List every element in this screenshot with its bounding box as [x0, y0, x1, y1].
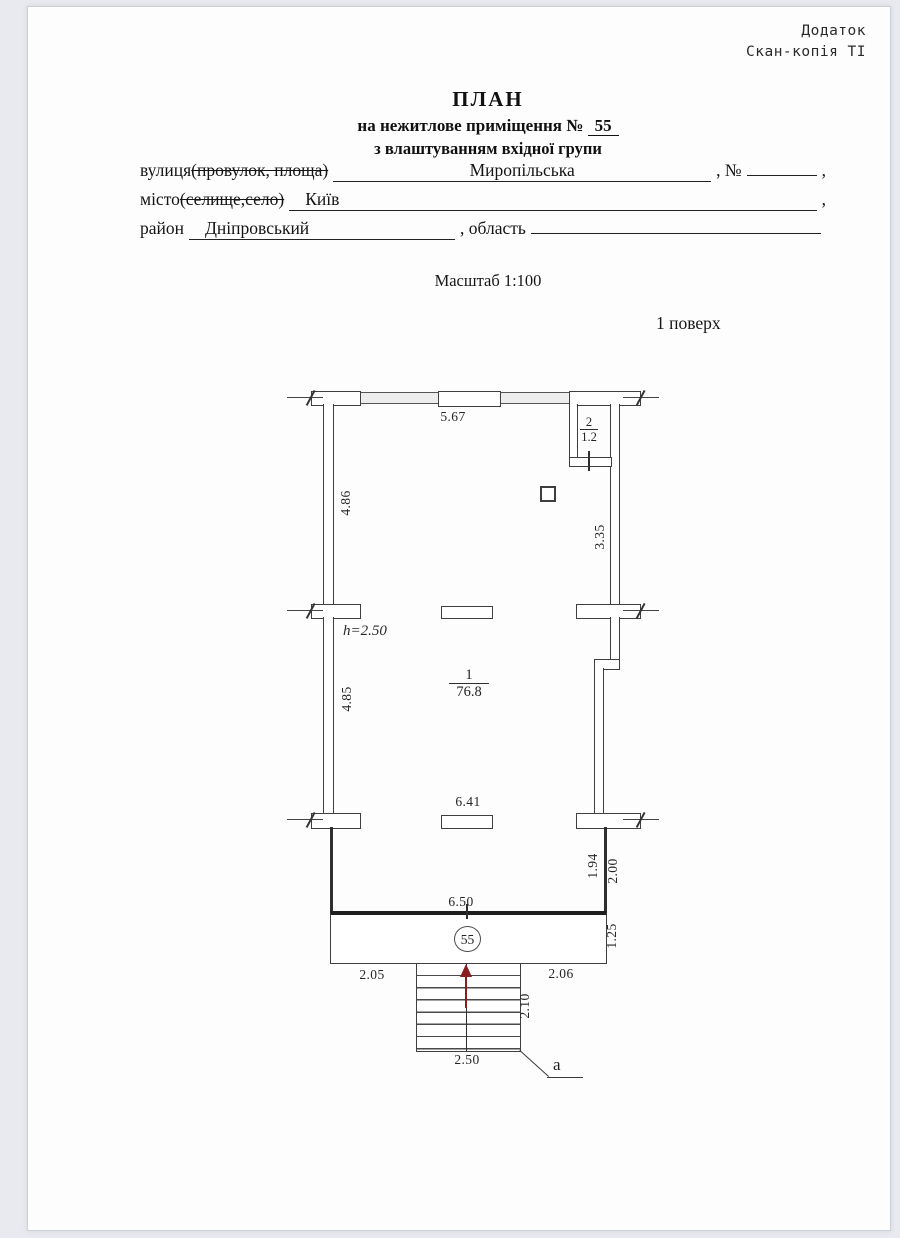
city-label: місто [140, 189, 180, 210]
oblast-value-field [531, 233, 821, 234]
street-label: вулиця [140, 160, 191, 181]
wall-right-lower [594, 668, 604, 815]
district-value-field: Дніпровський [189, 218, 455, 240]
scan-page: Додаток Скан-копія ТІ ПЛАН на нежитлове … [27, 6, 891, 1231]
column-square [540, 486, 556, 502]
dim-right-upper: 3.35 [592, 517, 608, 557]
entrance-leader-diagonal [519, 1050, 549, 1077]
number-label: , № [716, 160, 741, 181]
wall-right-mid-pier [576, 604, 641, 619]
form-row-street: вулиця (провулок, площа)Миропільська, №, [140, 160, 826, 189]
corner-note: Додаток Скан-копія ТІ [746, 21, 866, 63]
corner-note-line2: Скан-копія ТІ [746, 42, 866, 63]
wall-left-bottom-pier [311, 813, 361, 829]
dim-ext-bottom-left [287, 819, 323, 820]
dim-vestibule-depth: 1.25 [604, 916, 620, 956]
dim-mid-width: 6.41 [438, 794, 498, 810]
partition-mid-upper [441, 606, 493, 619]
dim-left-upper: 4.86 [338, 483, 354, 523]
premise-number: 55 [588, 116, 619, 136]
street-label-struck: (провулок, площа) [191, 160, 328, 181]
entry-arrow-stem [465, 976, 467, 1008]
room2-door-tick [588, 451, 590, 471]
dim-right-outer: 2.00 [605, 851, 621, 891]
premise-number-badge: 55 [454, 926, 481, 952]
title-subtitle2: з влаштуванням вхідної групи [88, 139, 888, 159]
street-value-field: Миропільська [333, 160, 711, 182]
ceiling-height-note: h=2.50 [343, 623, 387, 640]
wall-left-mid-pier [311, 604, 361, 619]
dim-stairs-width: 2.50 [437, 1052, 497, 1068]
dim-ext-mid-left [287, 610, 323, 611]
wall-left-upper [323, 404, 334, 606]
dim-bottom-left: 2.05 [342, 967, 402, 983]
room-main-number: 1 [449, 668, 489, 684]
city-row-comma: , [822, 189, 826, 210]
title-block: ПЛАН на нежитлове приміщення № 55 з влаш… [88, 87, 888, 159]
dim-top-width: 5.67 [423, 409, 483, 425]
dim-right-inner: 1.94 [585, 846, 601, 886]
wall-left-lower [323, 617, 334, 815]
dim-left-lower: 4.85 [339, 679, 355, 719]
entrance-leader-horizontal [547, 1077, 583, 1078]
room-main-label: 1 76.8 [441, 668, 497, 700]
corner-note-line1: Додаток [746, 21, 866, 42]
room-small-number: 2 [580, 416, 598, 430]
room-main-area: 76.8 [441, 684, 497, 700]
room2-wall-bottom [569, 457, 612, 467]
entrance-mark: а [553, 1055, 561, 1075]
oblast-label: , область [460, 218, 526, 239]
partition-mid-lower [441, 815, 493, 829]
dim-stairs-depth: 2.10 [517, 986, 533, 1026]
wall-top-left-pier [311, 391, 361, 406]
form-row-city: місто (селище,село)Київ, [140, 189, 826, 218]
wall-top-right-pier [569, 391, 641, 406]
subtitle-prefix: на нежитлове приміщення № [357, 116, 583, 135]
address-form: вулиця (провулок, площа)Миропільська, №,… [140, 160, 826, 247]
number-value-field [747, 175, 817, 176]
wall-right-bottom-pier [576, 813, 641, 829]
form-row-district: районДніпровський, область [140, 218, 826, 247]
room-small-area: 1.2 [571, 430, 607, 444]
screenshot-root: { "corner_note": { "line1": "Додаток", "… [0, 0, 900, 1238]
scale-label: Масштаб 1:100 [398, 271, 578, 291]
wall-left-vestibule [330, 827, 333, 915]
title-subtitle: на нежитлове приміщення № 55 [88, 116, 888, 136]
district-label: район [140, 218, 184, 239]
room-small-label: 2 1.2 [571, 416, 607, 444]
floor-label: 1 поверх [656, 313, 721, 334]
wall-top-center-pier [438, 391, 501, 407]
wall-right-upper [610, 404, 620, 606]
city-label-struck: (селище,село) [180, 189, 284, 210]
window-top-1 [361, 392, 438, 404]
street-row-comma: , [822, 160, 826, 181]
dim-bottom-right: 2.06 [531, 966, 591, 982]
dim-ext-top-left [287, 397, 323, 398]
dim-vestibule-width: 6.50 [431, 894, 491, 910]
city-value-field: Київ [289, 189, 816, 211]
page-title: ПЛАН [88, 87, 888, 112]
window-top-2 [501, 392, 569, 404]
